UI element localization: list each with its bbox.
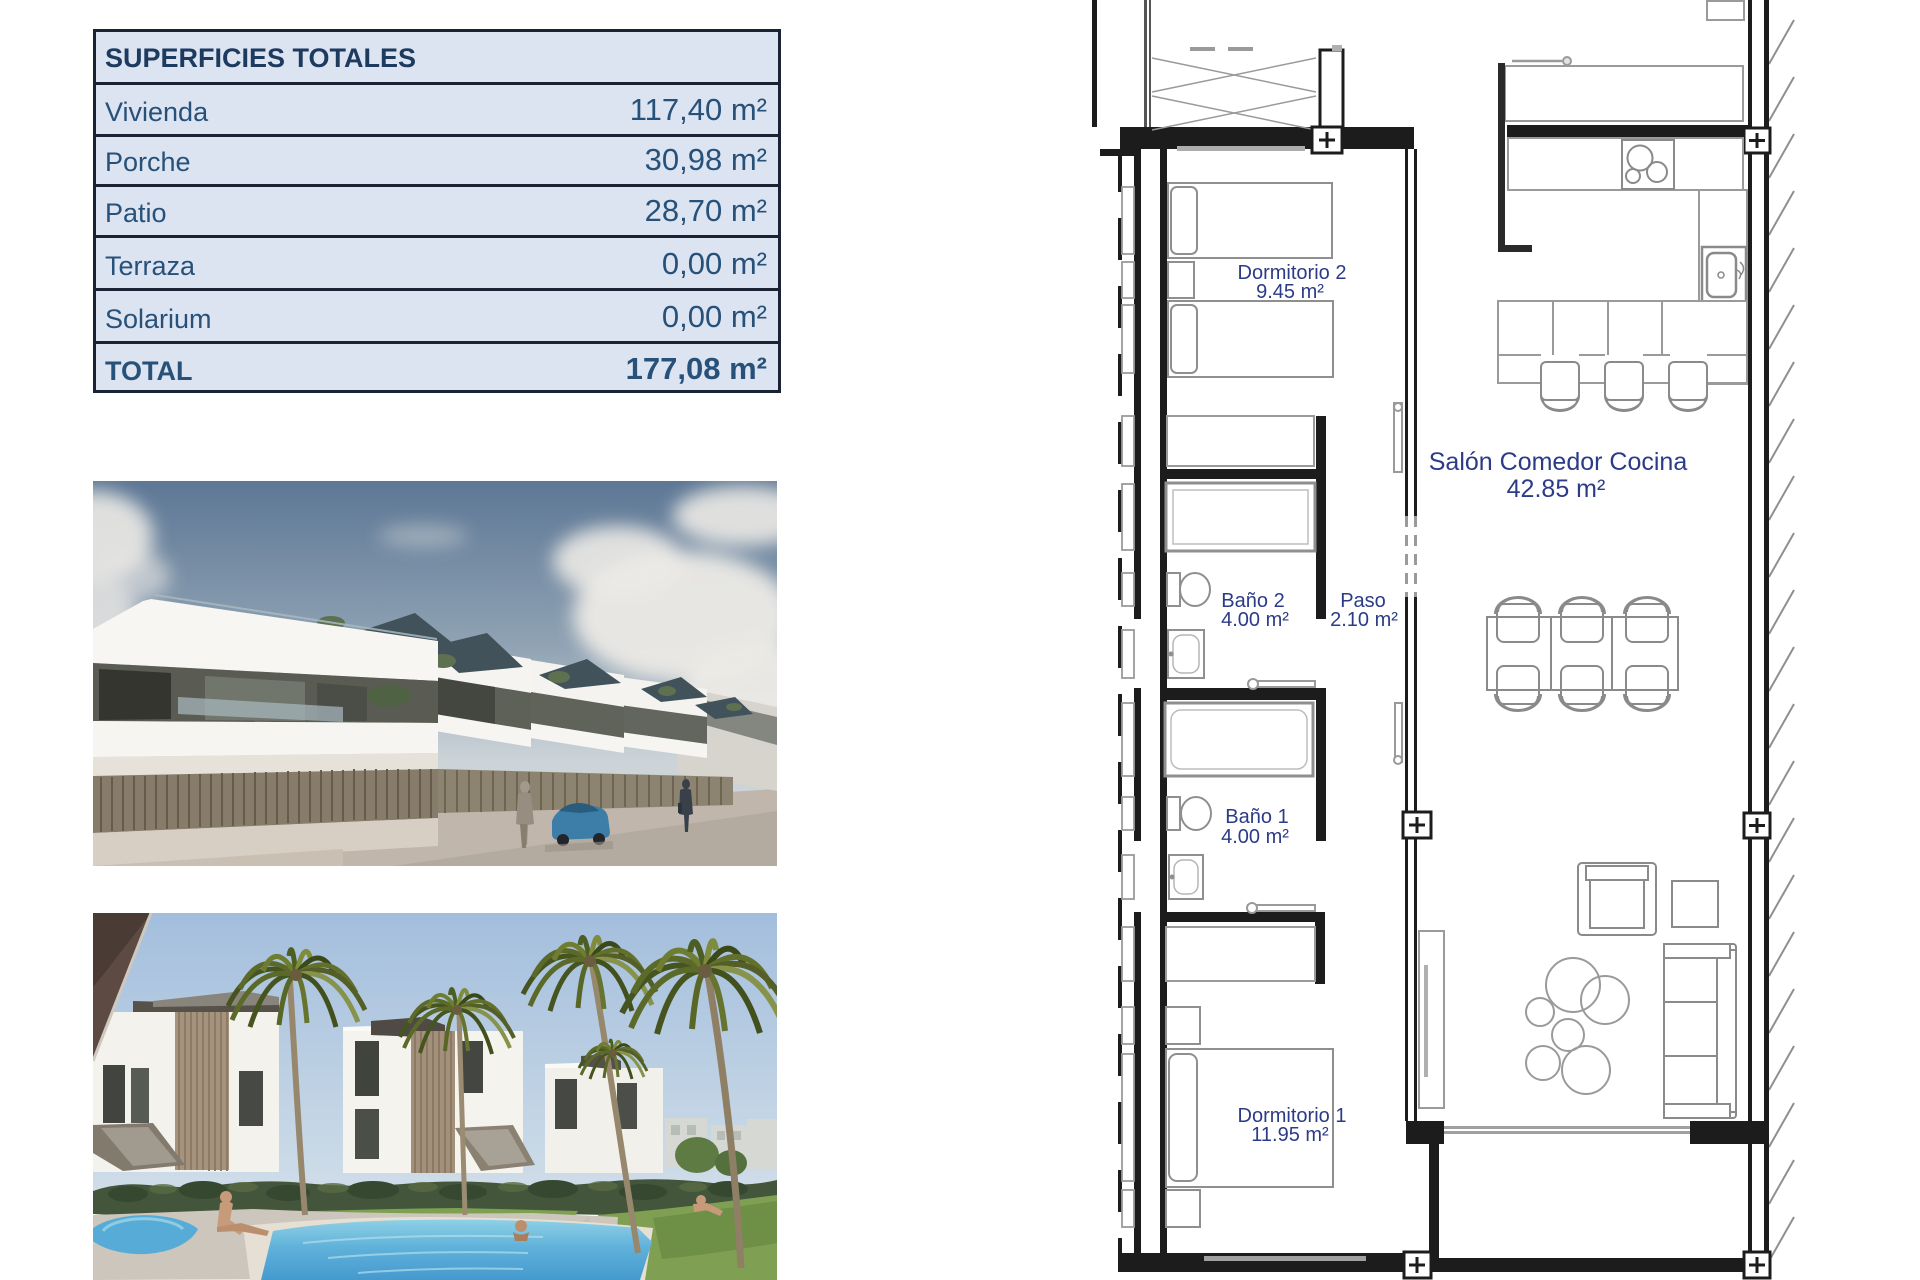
svg-text:4.00 m²: 4.00 m² xyxy=(1221,826,1289,848)
svg-text:4.00 m²: 4.00 m² xyxy=(1221,609,1289,631)
svg-text:9.45 m²: 9.45 m² xyxy=(1256,281,1324,303)
svg-text:2.10 m²: 2.10 m² xyxy=(1330,609,1398,631)
svg-text:Salón Comedor Cocina: Salón Comedor Cocina xyxy=(1429,448,1688,476)
svg-text:Baño 1: Baño 1 xyxy=(1225,806,1288,828)
svg-text:42.85 m²: 42.85 m² xyxy=(1507,475,1606,503)
svg-text:11.95 m²: 11.95 m² xyxy=(1251,1124,1329,1146)
